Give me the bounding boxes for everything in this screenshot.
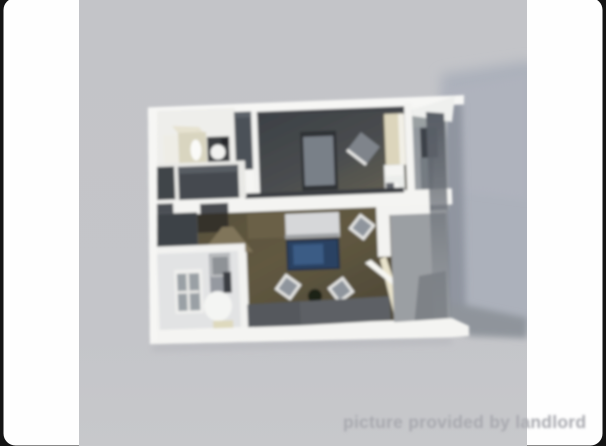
- svg-text:picture provided by landlord: picture provided by landlord: [343, 412, 586, 432]
